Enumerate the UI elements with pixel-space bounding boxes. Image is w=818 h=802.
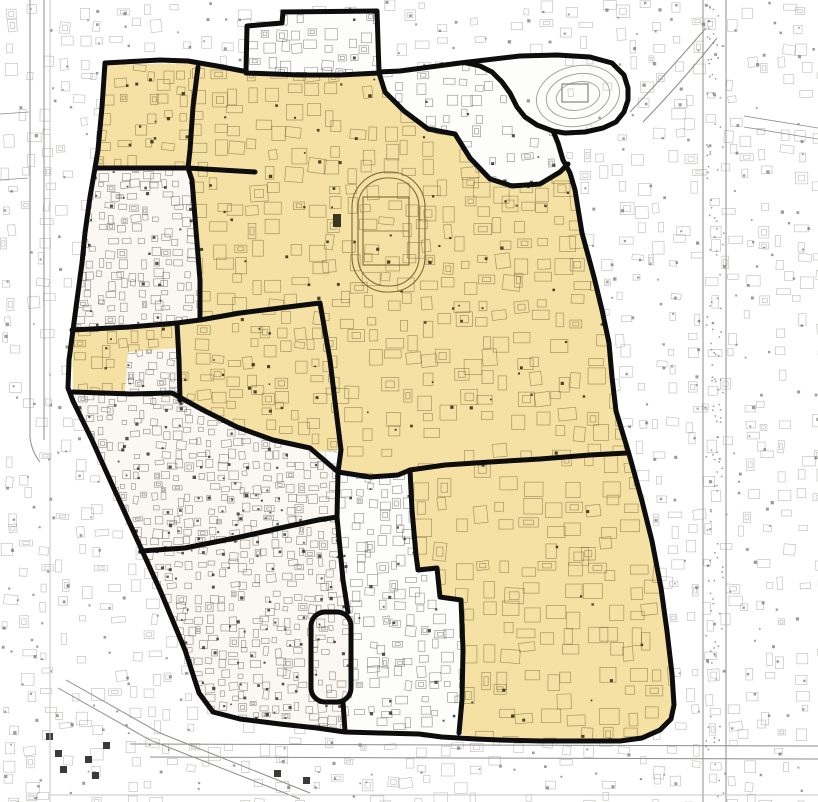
dark-block <box>85 756 92 763</box>
dark-block <box>55 750 62 757</box>
boundary-small-vertical <box>177 323 180 400</box>
boundary-protrusion-base <box>246 73 379 75</box>
dark-block <box>60 766 67 773</box>
dark-block <box>92 772 99 779</box>
site-plan-map-viewport <box>0 0 818 802</box>
site-plan-map <box>0 0 818 802</box>
dark-block <box>274 770 281 777</box>
boundary-corridor-connector <box>343 702 345 731</box>
dark-block <box>103 742 110 749</box>
dark-block <box>303 777 310 784</box>
